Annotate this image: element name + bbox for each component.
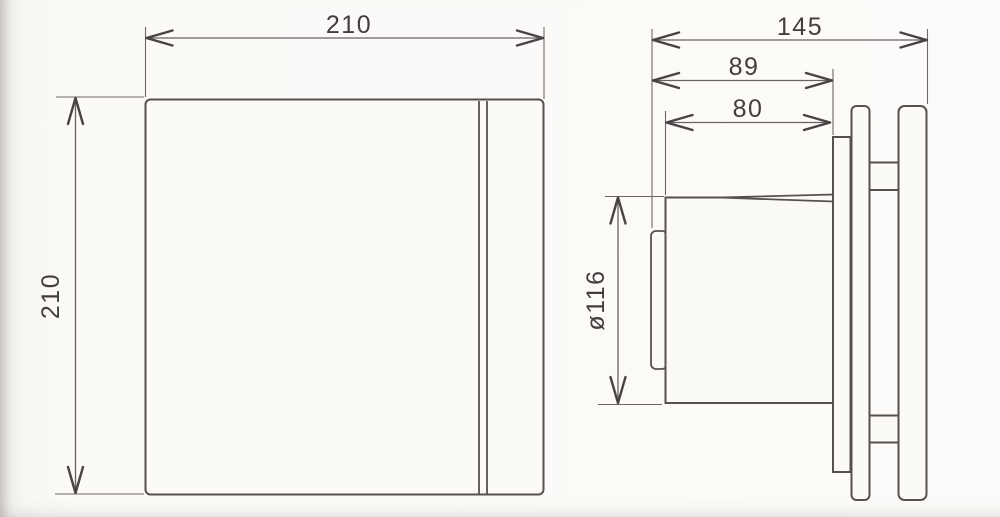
dim-front-height: 210 <box>37 97 144 494</box>
dim-label-front-width: 210 <box>326 11 372 39</box>
mounting-backplate <box>833 137 851 472</box>
front-cover-side <box>899 106 927 500</box>
dim-duct-length: 80 <box>666 95 832 195</box>
dim-label-duct-diameter: ø116 <box>582 269 610 330</box>
connector-top <box>869 163 899 191</box>
front-view <box>146 100 544 495</box>
duct-tube <box>666 198 834 404</box>
scanned-drawing-page: 210 210 145 <box>0 0 1000 517</box>
front-panel <box>146 100 544 495</box>
dim-label-overall-depth: 145 <box>777 13 823 41</box>
dim-front-width: 210 <box>146 11 545 99</box>
dim-label-duct-length: 80 <box>733 95 764 123</box>
dim-label-front-height: 210 <box>37 273 65 319</box>
dimension-drawing-canvas: 210 210 145 <box>0 0 1000 517</box>
side-view <box>651 106 927 500</box>
connector-bottom <box>869 416 899 443</box>
dim-label-depth-to-plate: 89 <box>729 53 760 81</box>
middle-plate <box>852 106 870 500</box>
